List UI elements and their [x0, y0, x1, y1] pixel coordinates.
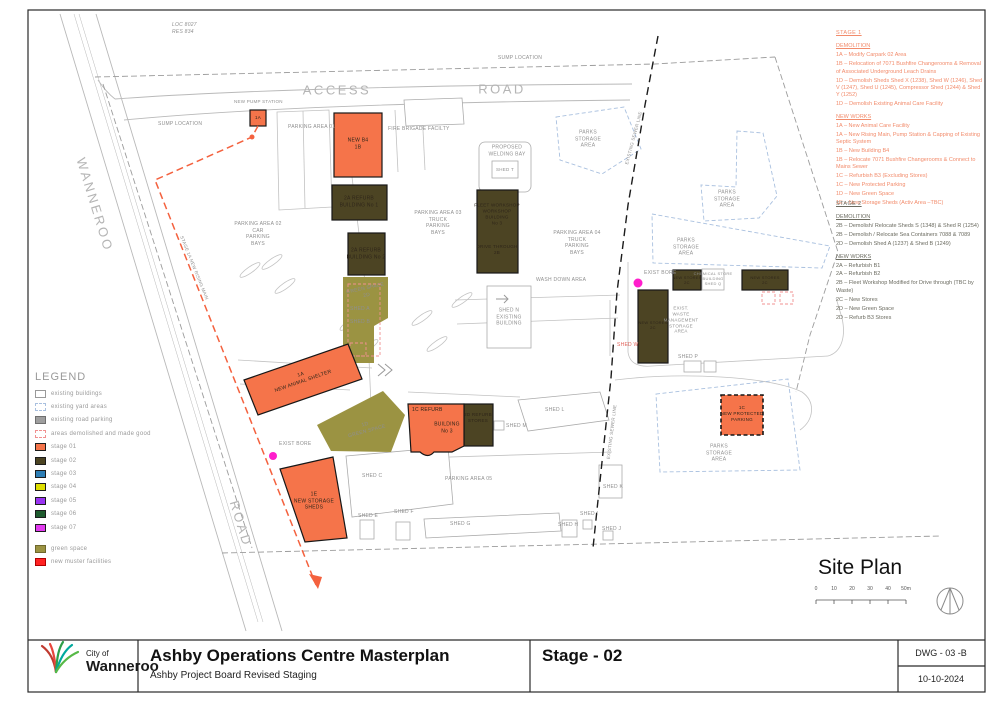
legend-swatch-existing-buildings [35, 390, 46, 398]
legend-swatch-stage07 [35, 524, 46, 532]
shed-k-building [599, 465, 622, 498]
shed-a-label: SHED A [350, 306, 370, 313]
scale-bar [816, 600, 906, 604]
parking-area-04-label: PARKING AREA 04 TRUCK PARKING BAYS [553, 230, 600, 256]
legend-item: new muster facilities [35, 556, 151, 569]
shed-t-label: SHED T [496, 167, 514, 173]
sump-location-top-label: SUMP LOCATION [498, 55, 542, 62]
shed-n-label: SHED N EXISTING BUILDING [496, 307, 522, 327]
legend-swatch-road-parking [35, 416, 46, 424]
north-arrow-icon [937, 588, 963, 614]
new-stores-a-label: NEW STORES 2C [672, 275, 701, 285]
legend: LEGEND existing buildings existing yard … [35, 371, 151, 569]
shed-m-building [494, 421, 504, 430]
site-plan-title: Site Plan [818, 556, 902, 580]
legend-label: existing road parking [51, 417, 113, 423]
new-b4-label: NEW B4 1B [348, 138, 369, 151]
legend-item: stage 01 [35, 441, 151, 454]
logo-city-of-text: City of [86, 650, 109, 658]
note-item: 2B – Fleet Workshop Modified for Drive t… [836, 280, 984, 295]
legend-label: stage 06 [51, 511, 76, 517]
shed-w-label: SHED W [617, 342, 639, 349]
note-item: 1B – Relocate 7071 Bushfire Changerooms … [836, 157, 984, 172]
drawing-sheet: LOC 8027 RES 834 SUMP LOCATION ACCESS RO… [0, 0, 993, 702]
legend-label: stage 07 [51, 525, 76, 531]
refurb-stores-2d [464, 404, 493, 446]
new-stores-c-label: NEW STORES 2C [638, 320, 667, 330]
scale-tick: 20 [849, 586, 855, 592]
scale-tick: 30 [867, 586, 873, 592]
parks-storage-label-2: PARKS STORAGE AREA [714, 189, 740, 209]
rising-main-arrowhead [309, 574, 322, 589]
access-road-label-1: ACCESS [303, 83, 371, 100]
legend-item: stage 07 [35, 521, 151, 534]
legend-item: areas demolished and made good [35, 427, 151, 440]
legend-label: green space [51, 546, 87, 552]
sump-location-left-label: SUMP LOCATION [158, 121, 202, 128]
legend-item: existing buildings [35, 387, 151, 400]
legend-swatch-stage04 [35, 483, 46, 491]
new-pump-station-label: NEW PUMP STATION [234, 99, 283, 105]
shed-e-label: SHED E [358, 513, 378, 520]
legend-label: existing buildings [51, 391, 102, 397]
legend-label: new muster facilities [51, 559, 111, 565]
fire-brigade-label: FIRE BRIGADE FACILTY [388, 126, 450, 133]
legend-swatch-green-space [35, 545, 46, 553]
legend-item: stage 02 [35, 454, 151, 467]
drive-through-label: DRIVE THROUGH 2B [477, 244, 518, 256]
note-item: 2B – Demolish/ Relocate Sheds S (1348) &… [836, 223, 984, 230]
stage2-demolition-heading: DEMOLITION [836, 214, 984, 221]
note-item: 1D – Demolish Existing Animal Care Facil… [836, 101, 984, 108]
refurb1-label: 2A REFURB BUILDING No 1 [340, 196, 379, 209]
shed-p-label: SHED P [678, 354, 698, 361]
stage1-demolition-heading: DEMOLITION [836, 43, 984, 50]
exist-bore-marker-west [269, 452, 277, 460]
note-item: 1D – Demolish Sheds Shed X (1238), Shed … [836, 78, 984, 100]
legend-item: existing road parking [35, 414, 151, 427]
legend-label: stage 03 [51, 471, 76, 477]
legend-label: stage 04 [51, 484, 76, 490]
shed-g-building [424, 513, 561, 538]
scale-tick: 0 [815, 586, 818, 592]
legend-label: areas demolished and made good [51, 431, 151, 437]
project-subtitle: Ashby Project Board Revised Staging [150, 670, 317, 681]
shed-p2-building [704, 361, 716, 372]
note-item: 1B – Relocation of 7071 Bushfire Changer… [836, 61, 984, 76]
legend-item: stage 04 [35, 481, 151, 494]
city-of-wanneroo-logo-icon [42, 642, 78, 672]
legend-item: stage 03 [35, 467, 151, 480]
logo-wanneroo-text: Wanneroo [86, 659, 159, 676]
scale-tick: 10 [831, 586, 837, 592]
parking-area-01-label: PARKING AREA 01 [288, 124, 335, 131]
b3-name-label: BUILDING No 3 [434, 422, 460, 435]
stage1-notes: STAGE 1 DEMOLITION 1A – Modify Carpark 0… [836, 30, 984, 209]
stage1-title: STAGE 1 [836, 30, 984, 37]
fleet-workshop-label: FLEET WORKSHOP WORKSHOP BUILDING No 3 [474, 202, 519, 225]
shed-m-label: SHED M [506, 423, 527, 430]
stage2-new-works-heading: NEW WORKS [836, 254, 984, 261]
legend-label: stage 02 [51, 458, 76, 464]
legend-swatch-yard-areas [35, 403, 46, 411]
legend-swatch-stage01 [35, 443, 46, 451]
project-title: Ashby Operations Centre Masterplan [150, 646, 449, 666]
fire-brigade-building [404, 98, 464, 126]
note-item: 2B – Demolish / Relocate Sea Containers … [836, 232, 984, 239]
note-item: 1B – New Building B4 [836, 148, 984, 155]
shed-i-building [583, 520, 592, 529]
note-item: 2D – Refurb B3 Stores [836, 315, 984, 322]
parking-area-05-label: PARKING AREA 05 [445, 476, 492, 483]
shed-i-label: SHED I [580, 511, 598, 518]
legend-swatch-stage05 [35, 497, 46, 505]
shed-j-label: SHED J [602, 526, 621, 533]
wash-down-label: WASH DOWN AREA [536, 277, 586, 284]
shed-l-label: SHED L [545, 407, 565, 414]
parking-area-03-label: PARKING AREA 03 TRUCK PARKING BAYS [414, 210, 461, 236]
scale-tick: 50m [901, 586, 911, 592]
legend-swatch-stage02 [35, 457, 46, 465]
legend-swatch-stage03 [35, 470, 46, 478]
refurb2-label: 2A REFURB BUILDING No 2 [347, 248, 386, 261]
note-item: 2D – Demolish Shed A (1237) & Shed B (12… [836, 241, 984, 248]
drawing-date: 10-10-2024 [918, 674, 964, 684]
shed-k-label: SHED K [603, 484, 623, 491]
storage-1e-label: 1E NEW STORAGE SHEDS [294, 491, 334, 511]
dwg-number: DWG - 03 -B [915, 648, 967, 658]
new-stores-b-label: NEW STORES 2C [750, 275, 779, 285]
legend-label: stage 01 [51, 444, 76, 450]
note-item: 2C – New Stores [836, 297, 984, 304]
exist-bore-west-label: EXIST BORE [279, 441, 311, 448]
stage-label: Stage - 02 [542, 646, 622, 666]
note-item: 1A – New Rising Main, Pump Station & Cap… [836, 132, 984, 147]
parking-outlines [238, 110, 843, 517]
scale-tick: 40 [885, 586, 891, 592]
pump-station-tag: 1A [255, 115, 261, 121]
stores-2d-label: 2D REFURB STORES [464, 412, 492, 424]
shed-c-building [346, 447, 453, 517]
exist-bore-marker-east [634, 279, 643, 288]
legend-item: stage 06 [35, 508, 151, 521]
stage2-notes: STAGE 2 DEMOLITION 2B – Demolish/ Reloca… [836, 201, 984, 323]
shed-f-building [396, 522, 410, 540]
shed-h-label: SHED H [558, 522, 578, 529]
note-item: 1C – Refurbish B3 (Excluding Stores) [836, 173, 984, 180]
legend-item: green space [35, 542, 151, 555]
legend-swatch-muster [35, 558, 46, 566]
legend-label: stage 05 [51, 498, 76, 504]
parks-storage-label-3: PARKS STORAGE AREA [673, 237, 699, 257]
exist-waste-label: EXIST. WASTE MANAGEMENT STORAGE AREA [664, 305, 699, 334]
stage1-new-works-heading: NEW WORKS [836, 114, 984, 121]
note-item: 2A – Refurbish B2 [836, 271, 984, 278]
shed-c-label: SHED C [362, 473, 382, 480]
note-item: 1D – New Green Space [836, 191, 984, 198]
shed-f-label: SHED F [394, 509, 414, 516]
parking-area-02-label: PARKING AREA 02 CAR PARKING BAYS [234, 221, 281, 247]
legend-item: stage 05 [35, 494, 151, 507]
legend-swatch-stage06 [35, 510, 46, 518]
legend-item: existing yard areas [35, 400, 151, 413]
access-road-label-2: ROAD [478, 82, 526, 99]
b3-tag-label: 1C REFURB [412, 407, 443, 414]
lot-reference-label: LOC 8027 RES 834 [172, 22, 197, 35]
legend-label: existing yard areas [51, 404, 107, 410]
note-item: 2A – Refurbish B1 [836, 263, 984, 270]
protected-parking-label: 1C NEW PROTECTED PARKING [721, 405, 764, 423]
legend-swatch-demolished [35, 430, 46, 438]
stage2-title: STAGE 2 [836, 201, 984, 208]
note-item: 1A – New Animal Care Facility [836, 123, 984, 130]
note-item: 2D – New Green Space [836, 306, 984, 313]
note-item: 1C – New Protected Parking [836, 182, 984, 189]
welding-bay-label: PROPOSED WELDING BAY [488, 145, 525, 158]
shed-e-building [360, 520, 374, 539]
parks-storage-label-4: PARKS STORAGE AREA [706, 443, 732, 463]
shed-p-building [684, 361, 701, 372]
shed-g-label: SHED G [450, 521, 471, 528]
note-item: 1A – Modify Carpark 02 Area [836, 52, 984, 59]
legend-title: LEGEND [35, 371, 151, 383]
shed-b-label: SHED B [350, 319, 370, 326]
parks-storage-label-1: PARKS STORAGE AREA [575, 129, 601, 149]
